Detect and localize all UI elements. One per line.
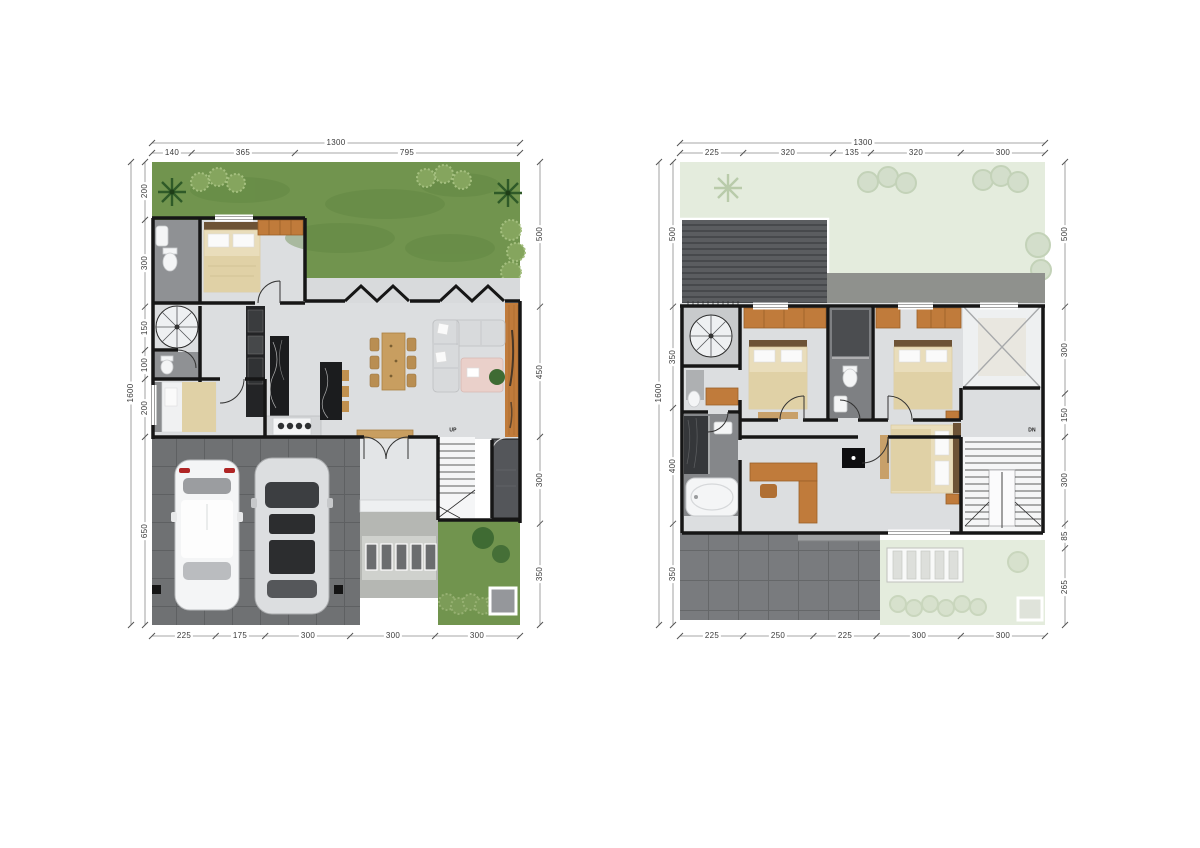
bathroom-upper xyxy=(684,414,738,516)
wardrobe xyxy=(744,308,826,328)
dim-label: 450 xyxy=(536,363,544,381)
garden-bottom-right xyxy=(438,520,520,625)
stair-direction-label: DN xyxy=(1028,429,1036,434)
tail-light xyxy=(179,468,190,473)
dim-label: 300 xyxy=(1061,341,1069,359)
dim-label: 320 xyxy=(779,149,797,157)
terrace xyxy=(680,533,880,620)
bathroom-1 xyxy=(154,220,200,302)
palm-tree-icon xyxy=(714,174,742,202)
floor-plans-canvas: 1300 140 365 795 225 175 300 300 300 160… xyxy=(0,0,1200,848)
toilet-icon xyxy=(161,360,173,374)
desk xyxy=(799,481,817,523)
ground-floor-plan: 1300 140 365 795 225 175 300 300 300 160… xyxy=(120,130,555,650)
upper-floor-plan: 1300 225 320 135 320 300 225 250 225 300… xyxy=(648,130,1093,650)
dim-label: 300 xyxy=(1061,471,1069,489)
wood-deck xyxy=(505,303,520,437)
dim-label: 320 xyxy=(907,149,925,157)
dim-label: 795 xyxy=(398,149,416,157)
wardrobe xyxy=(917,308,961,328)
master-bed xyxy=(891,423,961,493)
dim-label: 135 xyxy=(843,149,861,157)
dim-label: 1300 xyxy=(852,139,875,147)
dim-label: 300 xyxy=(468,632,486,640)
dim-label: 265 xyxy=(1061,578,1069,596)
car-2 xyxy=(251,458,333,614)
staircase xyxy=(438,437,475,520)
toilet-icon xyxy=(688,391,700,407)
fridge-icon xyxy=(248,310,263,332)
toilet-icon xyxy=(163,253,177,271)
dim-label: 400 xyxy=(669,457,677,475)
bedroom-1-bed xyxy=(204,222,260,292)
nightstand xyxy=(946,494,959,504)
dim-label: 350 xyxy=(669,348,677,366)
coffee-table xyxy=(467,368,479,377)
bed-bench xyxy=(758,412,798,419)
dim-label: 175 xyxy=(231,632,249,640)
dim-label: 500 xyxy=(1061,225,1069,243)
upper-floor-drawing xyxy=(648,130,1093,650)
stair-direction-label: UP xyxy=(449,429,456,434)
dim-label: 650 xyxy=(141,522,149,540)
bush-icon xyxy=(492,545,510,563)
dim-label: 300 xyxy=(910,632,928,640)
dim-label: 300 xyxy=(994,632,1012,640)
dim-label: 250 xyxy=(769,632,787,640)
ground-floor-drawing xyxy=(120,130,555,650)
shower xyxy=(832,310,869,356)
dim-label: 140 xyxy=(163,149,181,157)
sink-icon xyxy=(714,422,732,434)
pergola xyxy=(887,548,963,582)
dim-label: 350 xyxy=(669,565,677,583)
utility-pad xyxy=(1018,598,1042,620)
dim-label: 1600 xyxy=(655,382,663,405)
dim-label: 100 xyxy=(141,356,149,374)
dining-set xyxy=(370,333,416,390)
dim-label: 1600 xyxy=(127,382,135,405)
void-skylight xyxy=(963,306,1041,388)
plant-icon xyxy=(489,369,505,385)
dim-label: 300 xyxy=(299,632,317,640)
dim-label: 365 xyxy=(234,149,252,157)
sink-icon xyxy=(834,396,847,412)
toilet-icon xyxy=(843,369,857,387)
entry-porch xyxy=(360,437,438,512)
powder-room xyxy=(154,352,200,378)
dim-label: 200 xyxy=(141,182,149,200)
car-1 xyxy=(171,460,243,610)
bedroom-a-bed xyxy=(749,340,807,419)
bush-icon xyxy=(472,527,494,549)
vanity-cabinet xyxy=(706,388,738,405)
oven-icon xyxy=(248,336,263,354)
dim-label: 1300 xyxy=(325,139,348,147)
gate-post xyxy=(334,585,343,594)
dim-label: 350 xyxy=(536,565,544,583)
dim-label: 300 xyxy=(994,149,1012,157)
stepping-stones-path xyxy=(360,512,438,598)
dim-label: 300 xyxy=(384,632,402,640)
cabinet xyxy=(876,308,900,328)
dim-label: 225 xyxy=(703,149,721,157)
sink-icon xyxy=(156,226,168,246)
dim-label: 225 xyxy=(836,632,854,640)
dim-label: 225 xyxy=(703,632,721,640)
sloped-roof xyxy=(681,219,828,304)
bar-stool xyxy=(342,370,349,412)
tail-light xyxy=(224,468,235,473)
wardrobe xyxy=(258,220,303,235)
dim-label: 500 xyxy=(669,225,677,243)
utility-pad xyxy=(490,588,516,614)
dim-label: 85 xyxy=(1061,529,1069,543)
dim-label: 200 xyxy=(141,399,149,417)
dim-label: 300 xyxy=(536,471,544,489)
shower xyxy=(684,416,708,474)
under-stair-closet xyxy=(492,438,520,518)
garden-bottom-right-upper xyxy=(880,540,1045,625)
sliding-door xyxy=(888,530,950,537)
dim-label: 225 xyxy=(175,632,193,640)
dim-label: 150 xyxy=(141,319,149,337)
desk xyxy=(750,463,817,481)
spiral-staircase xyxy=(684,301,738,364)
dining-table xyxy=(382,333,405,390)
staircase xyxy=(963,437,1043,533)
dim-label: 500 xyxy=(536,225,544,243)
gate-post xyxy=(152,585,161,594)
desk-chair xyxy=(760,484,777,498)
bathroom-central xyxy=(830,308,871,418)
spiral-staircase xyxy=(156,306,198,348)
bedroom-2-bed xyxy=(154,382,216,432)
dim-label: 150 xyxy=(1061,406,1069,424)
bedroom-b-bed xyxy=(894,340,952,409)
roof-walkway xyxy=(827,273,1045,303)
dim-label: 300 xyxy=(141,254,149,272)
